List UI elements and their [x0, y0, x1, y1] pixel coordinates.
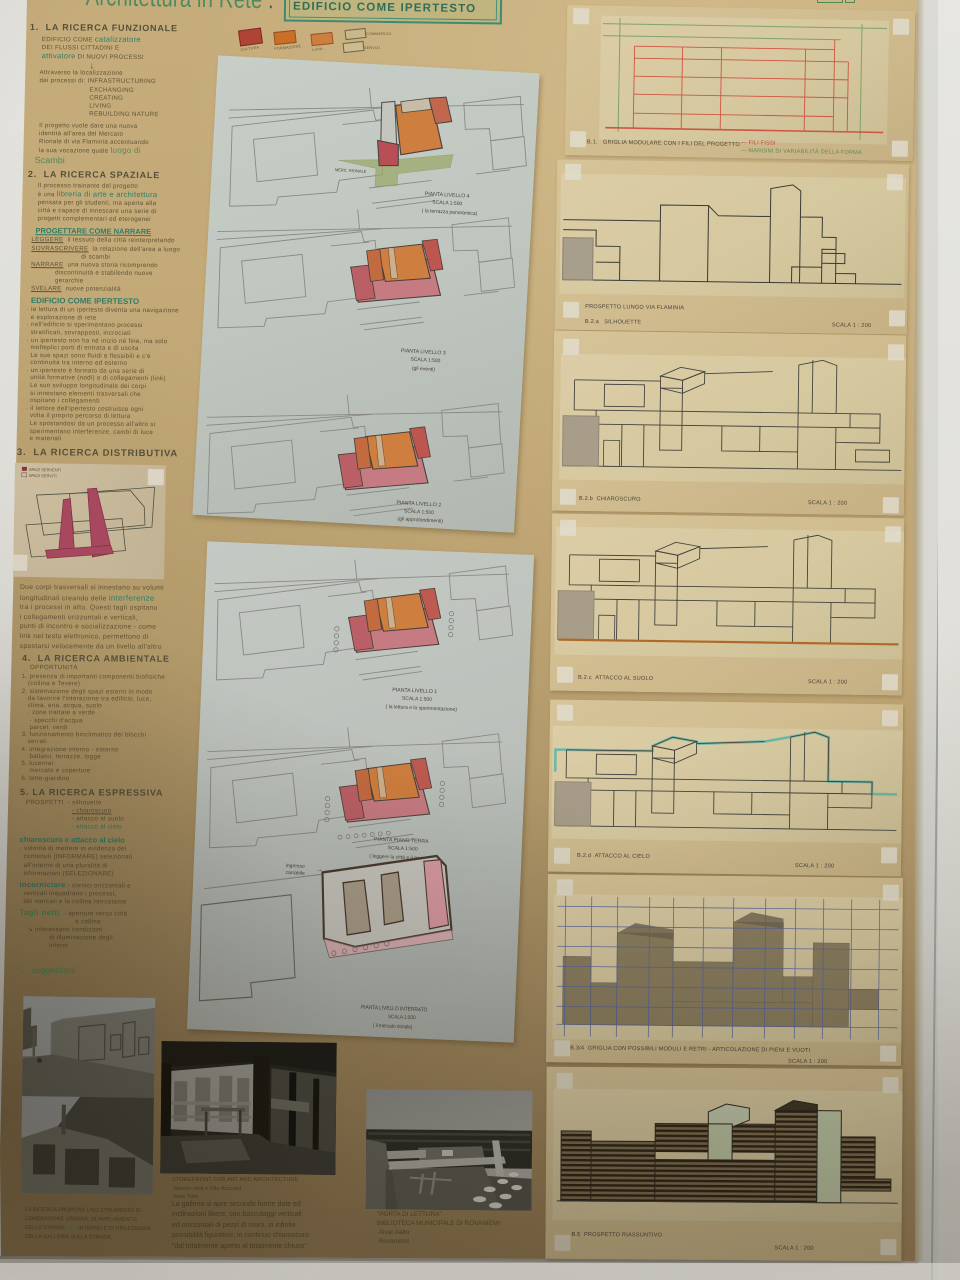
svg-text:SCALA 1:500: SCALA 1:500 — [410, 357, 441, 365]
svg-text:SPAZI SERVENTI: SPAZI SERVENTI — [29, 467, 61, 473]
svg-text:( la terrazza panoramica): ( la terrazza panoramica) — [422, 208, 478, 217]
svg-text:MERC. RIONALE: MERC. RIONALE — [335, 167, 367, 174]
svg-text:PIANTA LIVELLO INTERRATO: PIANTA LIVELLO INTERRATO — [361, 1004, 428, 1013]
svg-text:( la lettura e la sperimentazi: ( la lettura e la sperimentazione) — [385, 704, 457, 713]
svg-text:SCALA 1:500: SCALA 1:500 — [388, 845, 418, 852]
svg-text:(gli approfondimenti): (gli approfondimenti) — [397, 516, 443, 525]
svg-text:carrabile: carrabile — [285, 870, 305, 877]
svg-text:PIANTA LIVELLO 2: PIANTA LIVELLO 2 — [396, 500, 441, 509]
svg-text:SCALA 1:500: SCALA 1:500 — [388, 1014, 416, 1022]
svg-text:(gli eventi): (gli eventi) — [412, 366, 436, 373]
svg-text:ingresso: ingresso — [286, 863, 305, 870]
svg-text:SCALA 1:500: SCALA 1:500 — [402, 696, 432, 703]
svg-text:PIANTA LIVELLO 3: PIANTA LIVELLO 3 — [401, 348, 446, 357]
svg-text:SCALA 1:500: SCALA 1:500 — [404, 508, 435, 516]
svg-text:SPAZI SERVITI: SPAZI SERVITI — [29, 473, 57, 478]
svg-text:( il mercato rionale): ( il mercato rionale) — [373, 1023, 413, 1031]
svg-text:SCALA 1:500: SCALA 1:500 — [432, 200, 463, 208]
svg-text:PIANTA LIVELLO 1: PIANTA LIVELLO 1 — [392, 687, 437, 695]
svg-text:PIANTA LIVELLO 4: PIANTA LIVELLO 4 — [424, 191, 469, 200]
